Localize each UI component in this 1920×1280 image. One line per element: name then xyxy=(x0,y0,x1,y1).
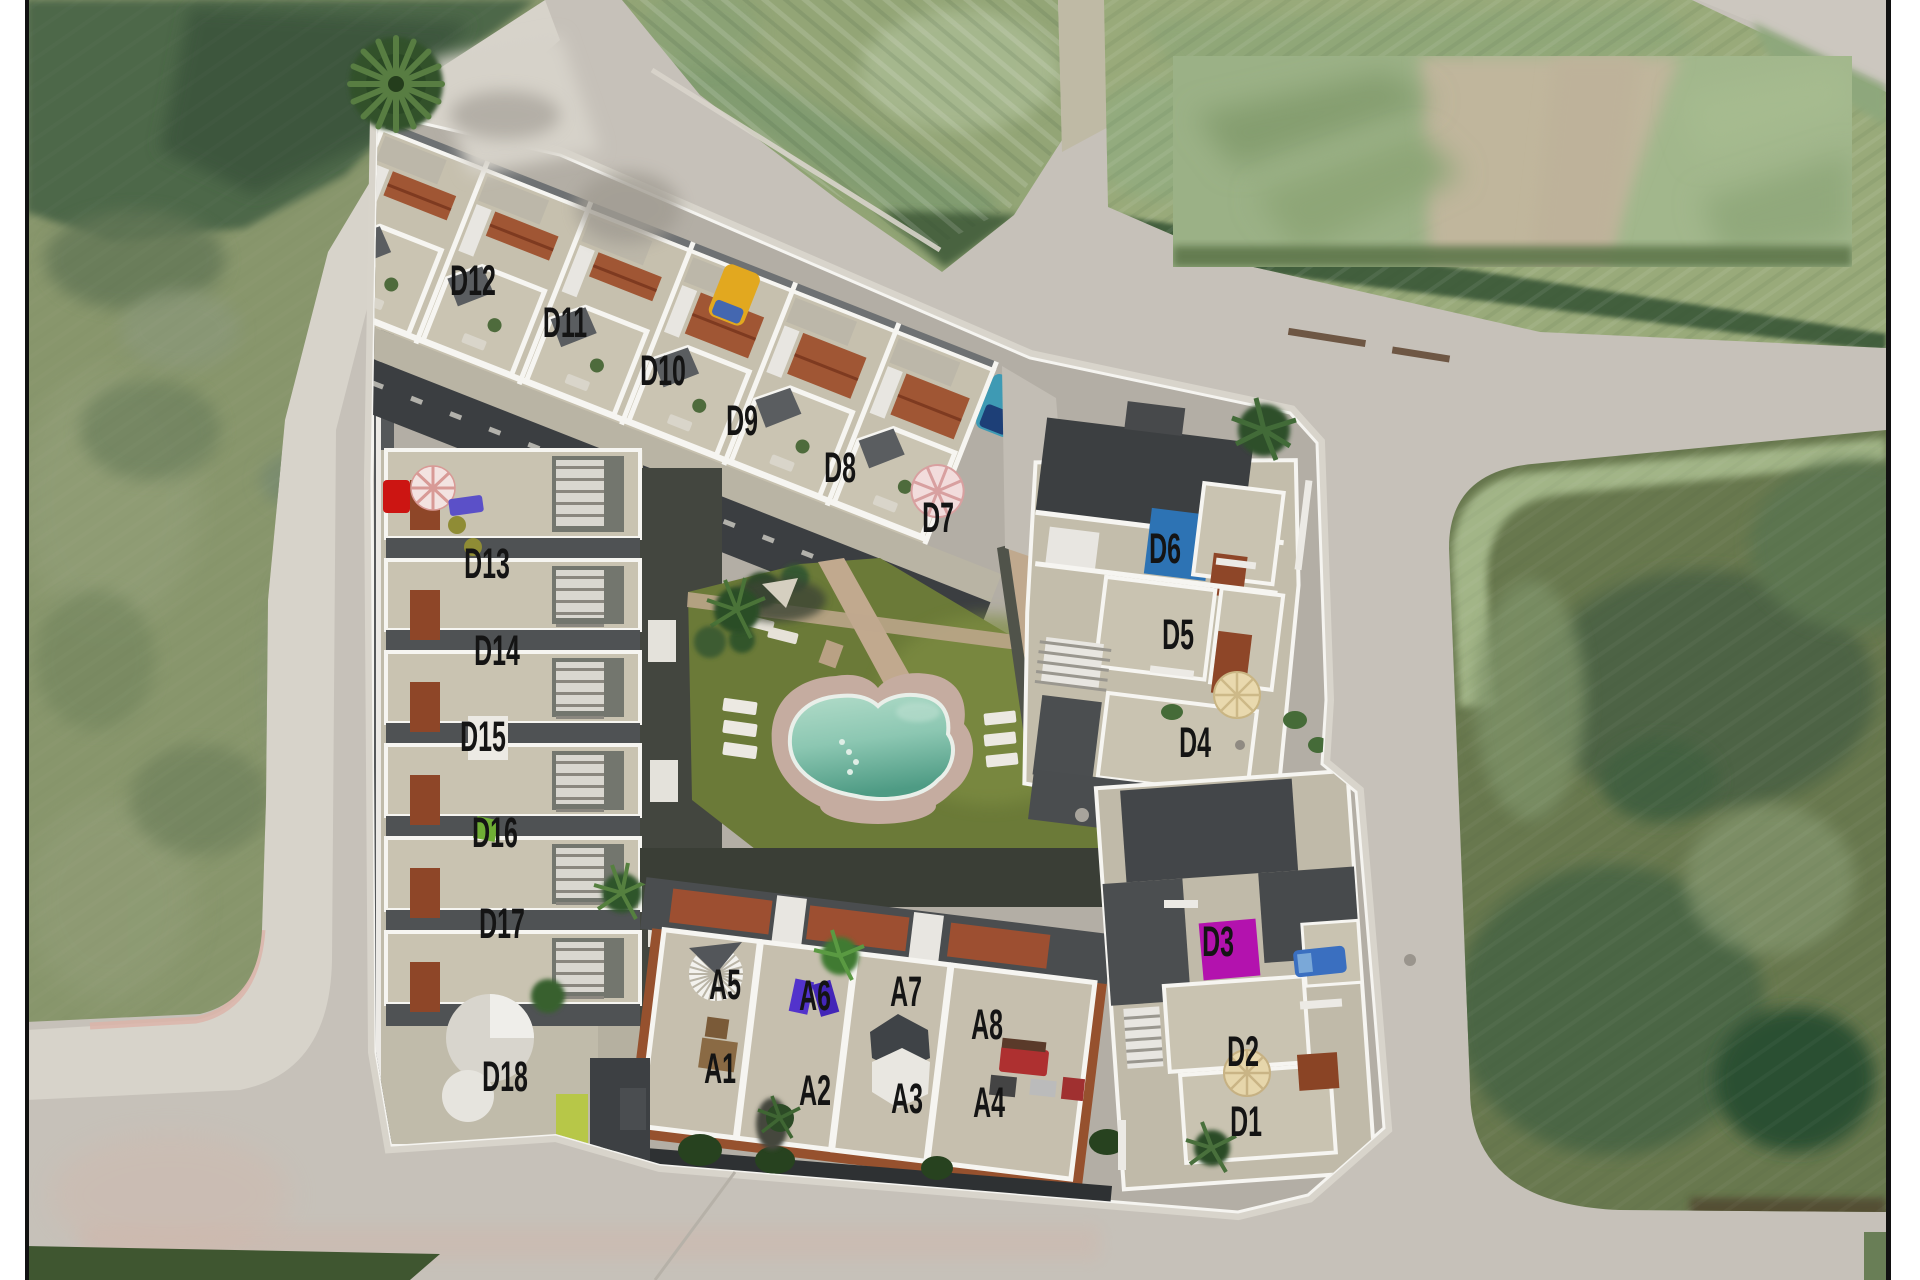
svg-text:D12: D12 xyxy=(450,257,496,305)
svg-text:D10: D10 xyxy=(640,347,686,395)
svg-text:A6: A6 xyxy=(799,972,831,1020)
svg-text:D5: D5 xyxy=(1162,611,1194,659)
svg-text:D15: D15 xyxy=(460,713,506,761)
svg-text:D2: D2 xyxy=(1227,1028,1259,1076)
svg-text:D18: D18 xyxy=(482,1053,528,1101)
svg-text:D14: D14 xyxy=(474,627,520,675)
svg-text:D6: D6 xyxy=(1149,525,1181,573)
svg-text:A7: A7 xyxy=(890,968,922,1016)
svg-text:A3: A3 xyxy=(891,1075,923,1123)
svg-text:D1: D1 xyxy=(1230,1098,1262,1146)
svg-text:A5: A5 xyxy=(709,961,741,1009)
svg-text:D16: D16 xyxy=(472,809,518,857)
svg-text:D4: D4 xyxy=(1179,719,1211,767)
svg-text:D13: D13 xyxy=(464,540,510,588)
svg-text:A2: A2 xyxy=(799,1067,831,1115)
svg-text:A8: A8 xyxy=(971,1001,1003,1049)
svg-text:D9: D9 xyxy=(726,397,758,445)
svg-text:D11: D11 xyxy=(543,299,587,347)
svg-text:D8: D8 xyxy=(824,444,856,492)
svg-text:D3: D3 xyxy=(1202,918,1234,966)
svg-text:D17: D17 xyxy=(479,900,525,948)
svg-text:A4: A4 xyxy=(973,1079,1005,1127)
svg-text:D7: D7 xyxy=(922,494,954,542)
svg-text:A1: A1 xyxy=(704,1045,736,1093)
